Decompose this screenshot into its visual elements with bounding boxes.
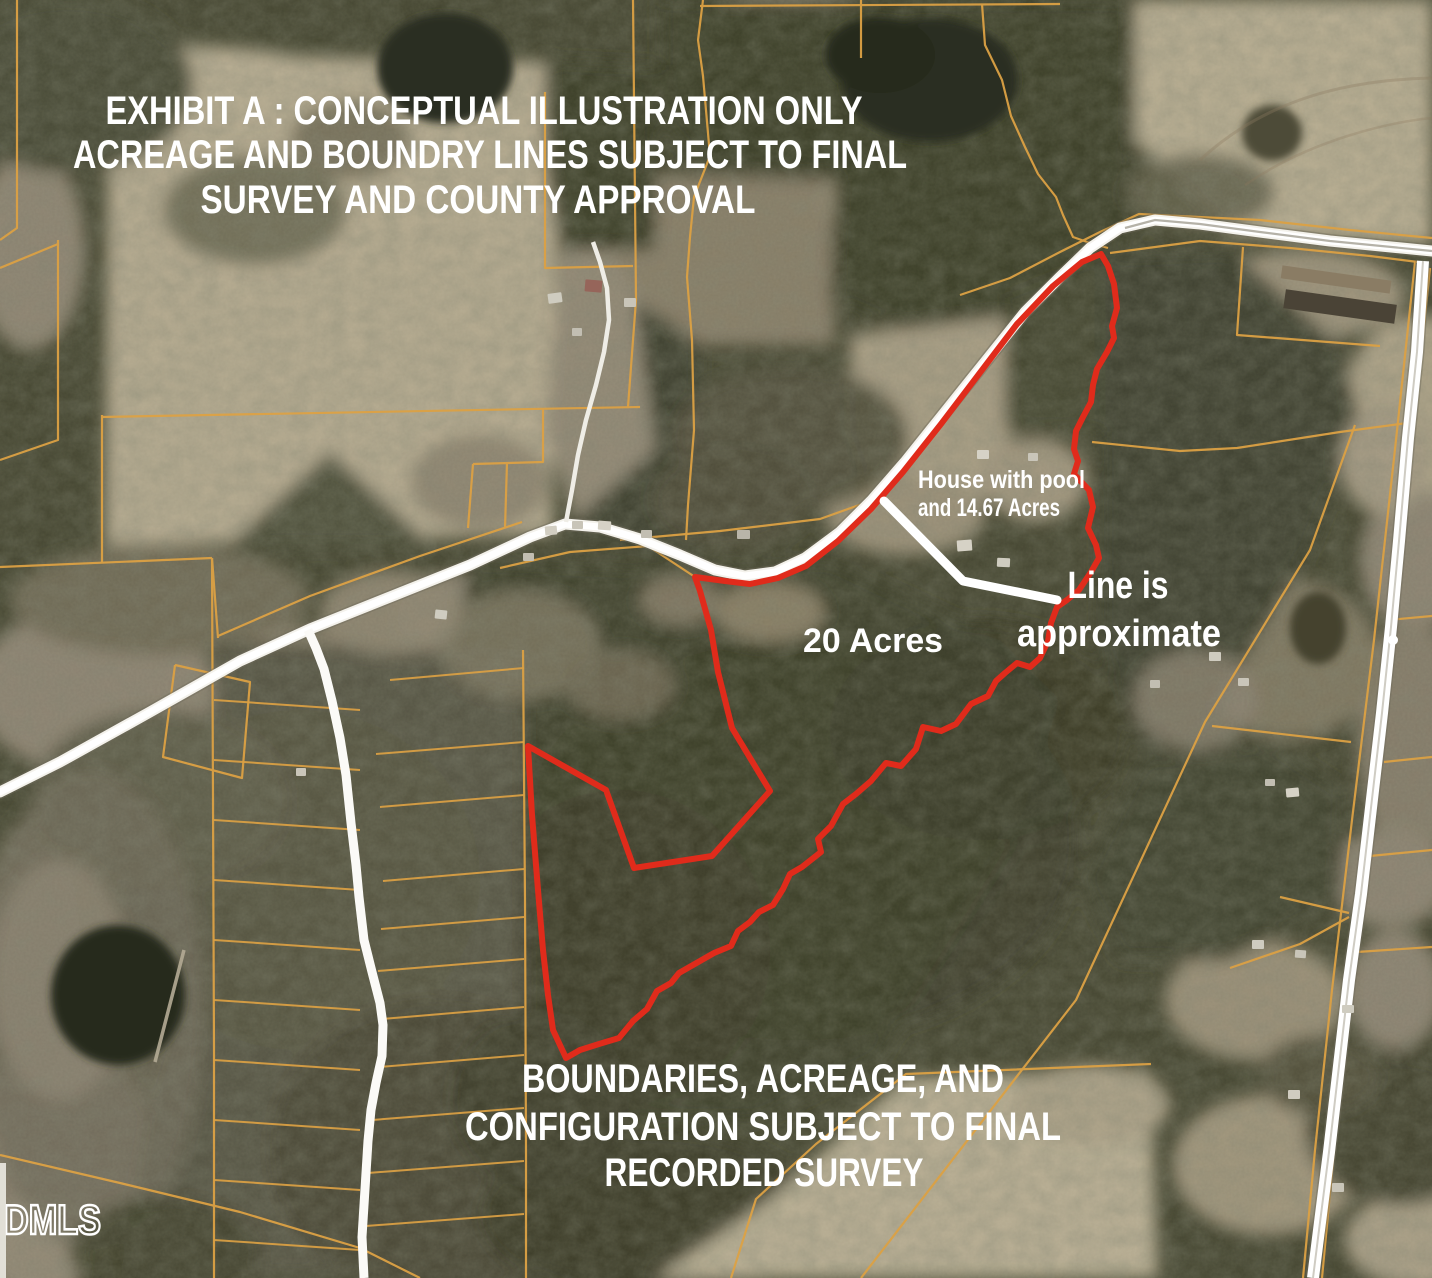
svg-text:ACREAGE AND BOUNDRY LINES SUBJ: ACREAGE AND BOUNDRY LINES SUBJECT TO FIN… [73,133,907,177]
svg-text:CONFIGURATION SUBJECT TO FINAL: CONFIGURATION SUBJECT TO FINAL [465,1105,1061,1149]
svg-text:approximate: approximate [1017,613,1221,655]
svg-text:20 Acres: 20 Acres [803,622,943,660]
svg-text:RECORDED SURVEY: RECORDED SURVEY [605,1151,924,1195]
svg-text:SURVEY AND COUNTY APPROVAL: SURVEY AND COUNTY APPROVAL [201,178,756,222]
svg-text:BOUNDARIES, ACREAGE, AND: BOUNDARIES, ACREAGE, AND [522,1057,1004,1101]
svg-text:Line is: Line is [1068,565,1169,607]
svg-text:DMLS: DMLS [4,1196,101,1243]
svg-text:and 14.67 Acres: and 14.67 Acres [918,494,1060,522]
svg-text:EXHIBIT A : CONCEPTUAL ILLUSTR: EXHIBIT A : CONCEPTUAL ILLUSTRATION ONLY [106,89,863,133]
svg-text:House with pool: House with pool [918,466,1085,494]
